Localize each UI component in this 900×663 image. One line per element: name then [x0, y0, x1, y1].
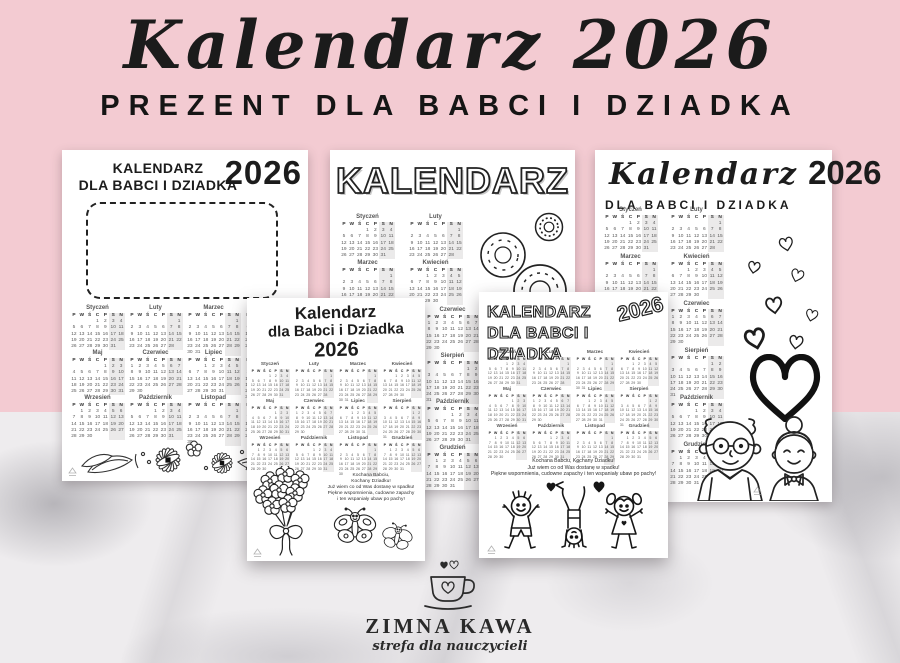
month-name-label: Styczeń	[340, 214, 395, 221]
page3-year: 2026	[247, 337, 426, 364]
mini-month-calendar-1: StyczeńPWŚCPSN12345678910111213141516171…	[340, 214, 395, 259]
mini-month-calendar-2: LutyPWŚCPSN12345678910111213141516171819…	[669, 207, 724, 252]
day-cell: 28	[70, 434, 78, 440]
month-days-grid: PWŚCPSN123456789101112131415161718192021…	[669, 262, 724, 299]
brand-footer: ZIMNA KAWA strefa dla nauczycieli	[350, 560, 550, 654]
month-name-label: Październik	[294, 436, 334, 442]
day-cell: 28	[356, 253, 364, 259]
coffee-cup-heart-logo-icon	[413, 560, 487, 612]
month-name-label: Luty	[294, 362, 334, 368]
mini-month-calendar-10: PaździernikPWŚCPSN1234567891011121314151…	[531, 424, 571, 460]
month-days-grid: PWŚCPSN123456789101112131415161718192021…	[382, 369, 422, 398]
mini-month-calendar-2: LutyPWŚCPSN12345678910111213141516171819…	[128, 305, 183, 350]
day-cell: 31	[642, 246, 650, 252]
mini-month-calendar-8: SierpieńPWŚCPSN1234567891011121314151617…	[669, 348, 724, 399]
mini-month-calendar-7: LipiecPWŚCPSN123456789101112131415161718…	[575, 387, 615, 423]
day-cell: 29	[449, 438, 457, 444]
day-cell	[708, 293, 716, 299]
day-cell	[455, 253, 463, 259]
month-days-grid: PWŚCPSN123456789101112131415161718192021…	[250, 406, 290, 435]
month-days-grid: PWŚCPSN123456789101112131415161718192021…	[531, 394, 571, 423]
month-name-label: Luty	[128, 305, 183, 312]
mini-month-calendar-10: PaździernikPWŚCPSN1234567891011121314151…	[128, 395, 183, 440]
mini-month-calendar-1: StyczeńPWŚCPSN12345678910111213141516171…	[487, 350, 527, 386]
mini-month-calendar-8: SierpieńPWŚCPSN1234567891011121314151617…	[425, 353, 480, 404]
mini-month-calendar-2: LutyPWŚCPSN12345678910111213141516171819…	[531, 350, 571, 386]
day-cell: 30	[634, 246, 642, 252]
main-title: Kalendarz 2026	[0, 6, 900, 84]
month-days-grid: PWŚCPSN123456789101112131415161718192021…	[250, 369, 290, 398]
day-cell	[449, 346, 457, 352]
month-name-label: Październik	[425, 399, 480, 406]
month-days-grid: PWŚCPSN123456789101112131415161718192021…	[340, 222, 395, 259]
month-name-label: Październik	[128, 395, 183, 402]
day-cell: 27	[700, 246, 708, 252]
month-name-label: Luty	[669, 207, 724, 214]
month-name-label: Lipiec	[338, 399, 378, 405]
day-cell: 28	[708, 246, 716, 252]
month-name-label: Styczeń	[487, 350, 527, 356]
page1-title-line2: DLA BABCI I DZIADKA	[74, 177, 242, 194]
day-cell: 28	[669, 481, 677, 487]
day-cell: 29	[433, 484, 441, 490]
month-name-label: Sierpień	[669, 348, 724, 355]
month-name-label: Marzec	[603, 254, 658, 261]
day-cell: 26	[340, 253, 348, 259]
month-name-label: Marzec	[340, 260, 395, 267]
day-cell	[565, 418, 571, 423]
day-cell	[685, 340, 693, 346]
month-name-label: Sierpień	[619, 387, 659, 393]
month-days-grid: PWŚCPSN123456789101112131415161718192021…	[619, 357, 659, 386]
day-cell: 27	[669, 293, 677, 299]
day-cell	[700, 293, 708, 299]
month-days-grid: PWŚCPSN123456789101112131415161718192021…	[531, 431, 571, 460]
day-cell: 28	[619, 246, 627, 252]
day-cell	[650, 246, 658, 252]
day-cell	[716, 293, 724, 299]
promo-graphic: Kalendarz 2026 PREZENT DLA BABCI I DZIAD…	[0, 0, 900, 663]
month-name-label: Czerwiec	[294, 399, 334, 405]
zimna-kawa-stamp-icon	[753, 486, 762, 496]
page4-poem: Kochana Babciu, Kochany Dziadku! Już wie…	[487, 458, 660, 478]
mini-month-calendar-6: CzerwiecPWŚCPSN1234567891011121314151617…	[425, 307, 480, 352]
day-cell: 30	[441, 484, 449, 490]
month-name-label: Wrzesień	[250, 436, 290, 442]
month-name-label: Marzec	[338, 362, 378, 368]
mini-month-calendar-4: KwiecieńPWŚCPSN1234567891011121314151617…	[382, 362, 422, 398]
day-cell	[447, 299, 455, 305]
month-days-grid: PWŚCPSN123456789101112131415161718192021…	[425, 453, 480, 490]
mini-month-calendar-2: LutyPWŚCPSN12345678910111213141516171819…	[294, 362, 334, 398]
page2-title: KALENDARZ	[330, 160, 575, 202]
day-cell: 28	[447, 253, 455, 259]
playing-kids-illustration	[499, 480, 649, 554]
mini-month-calendar-6: CzerwiecPWŚCPSN1234567891011121314151617…	[128, 350, 183, 395]
month-name-label: Kwiecień	[619, 350, 659, 356]
day-cell: 26	[693, 246, 701, 252]
day-cell: 26	[425, 438, 433, 444]
day-cell: 27	[611, 246, 619, 252]
month-name-label: Wrzesień	[487, 424, 527, 430]
mini-month-calendar-3: MarzecPWŚCPSN123456789101112131415161718…	[575, 350, 615, 391]
mini-month-calendar-3: MarzecPWŚCPSN123456789101112131415161718…	[186, 305, 241, 356]
month-name-label: Luty	[408, 214, 463, 221]
day-cell	[700, 340, 708, 346]
month-name-label: Lipiec	[186, 350, 241, 357]
day-cell: 25	[424, 253, 432, 259]
month-name-label: Maj	[487, 387, 527, 393]
page1-title-line1: KALENDARZ	[74, 160, 242, 177]
page1-title: KALENDARZ DLA BABCI I DZIADKA	[74, 160, 242, 194]
mini-month-calendar-7: LipiecPWŚCPSN123456789101112131415161718…	[186, 350, 241, 395]
mini-month-calendar-11: ListopadPWŚCPSN1234567891011121314151617…	[338, 436, 378, 477]
day-cell	[708, 340, 716, 346]
month-days-grid: PWŚCPSN123456789101112131415161718192021…	[669, 356, 724, 399]
day-cell	[653, 381, 659, 386]
month-days-grid: PWŚCPSN123456789101112131415161718192021…	[382, 443, 422, 472]
month-name-label: Marzec	[186, 305, 241, 312]
page5-title: Kalendarz 2026	[609, 154, 829, 192]
mini-month-calendar-9: WrzesieńPWŚCPSN1234567891011121314151617…	[70, 395, 125, 440]
month-name-label: Maj	[250, 399, 290, 405]
main-subtitle: PREZENT DLA BABCI I DZIADKA	[0, 90, 900, 123]
month-name-label: Październik	[669, 395, 724, 402]
day-cell	[284, 393, 290, 398]
day-cell	[439, 299, 447, 305]
day-cell: 27	[677, 434, 685, 440]
day-cell	[521, 381, 527, 386]
mini-month-calendar-6: CzerwiecPWŚCPSN1234567891011121314151617…	[294, 399, 334, 435]
mini-month-calendar-6: CzerwiecPWŚCPSN1234567891011121314151617…	[531, 387, 571, 423]
day-cell: 25	[685, 246, 693, 252]
day-cell: 30	[693, 293, 701, 299]
page5-year: 2026	[808, 154, 881, 192]
poem-line: Kochana Babciu, Kochany Dziadku!	[487, 458, 660, 465]
day-cell	[609, 418, 615, 423]
mini-month-calendar-2: LutyPWŚCPSN12345678910111213141516171819…	[408, 214, 463, 259]
day-cell: 27	[439, 253, 447, 259]
mini-month-calendar-12: GrudzieńPWŚCPSN1234567891011121314151617…	[619, 424, 659, 460]
month-name-label: Czerwiec	[669, 301, 724, 308]
day-cell	[456, 346, 464, 352]
day-cell: 26	[603, 246, 611, 252]
day-cell: 30	[456, 438, 464, 444]
month-days-grid: PWŚCPSN123456789101112131415161718192021…	[487, 431, 527, 460]
calendar-page-flowers-bouquet: Kalendarz dla Babci i Dziadka 2026 Stycz…	[247, 298, 425, 561]
day-cell: 26	[669, 434, 677, 440]
page1-year: 2026	[225, 154, 302, 192]
month-days-grid: PWŚCPSN123456789101112131415161718192021…	[531, 357, 571, 386]
day-cell: 28	[425, 484, 433, 490]
poem-line: Piękne wspomnienia, cudowne zapachy i te…	[487, 471, 660, 478]
day-cell: 30	[677, 340, 685, 346]
mini-month-calendar-1: StyczeńPWŚCPSN12345678910111213141516171…	[70, 305, 125, 350]
day-cell: 30	[371, 253, 379, 259]
day-cell: 31	[521, 418, 527, 423]
month-name-label: Czerwiec	[128, 350, 183, 357]
day-cell: 27	[433, 438, 441, 444]
month-days-grid: PWŚCPSN123456789101112131415161718192021…	[294, 369, 334, 398]
mini-month-calendar-5: MajPWŚCPSN123456789101112131415161718192…	[250, 399, 290, 435]
month-days-grid: PWŚCPSN123456789101112131415161718192021…	[70, 313, 125, 350]
day-cell	[565, 381, 571, 386]
month-days-grid: PWŚCPSN123456789101112131415161718192021…	[425, 361, 480, 404]
page3-poem: Kochana Babciu, Kochany Dziadku! Już wie…	[319, 473, 423, 503]
day-cell: 30	[433, 346, 441, 352]
month-days-grid: PWŚCPSN123456789101112131415161718192021…	[70, 403, 125, 440]
day-cell	[693, 340, 701, 346]
month-days-grid: PWŚCPSN123456789101112131415161718192021…	[128, 313, 183, 350]
month-name-label: Kwiecień	[382, 362, 422, 368]
month-name-label: Lipiec	[575, 387, 615, 393]
month-name-label: Sierpień	[425, 353, 480, 360]
day-cell: 24	[677, 246, 685, 252]
poem-line: Już wiem co od Was dostanę w spadku!	[487, 465, 660, 472]
mini-month-calendar-1: StyczeńPWŚCPSN12345678910111213141516171…	[603, 207, 658, 252]
day-cell: 29	[364, 253, 372, 259]
day-cell: 23	[408, 253, 416, 259]
mini-month-calendar-9: WrzesieńPWŚCPSN1234567891011121314151617…	[487, 424, 527, 460]
month-days-grid: PWŚCPSN123456789101112131415161718192021…	[338, 369, 378, 403]
day-cell	[387, 253, 395, 259]
hearts-illustration	[733, 232, 827, 354]
month-name-label: Maj	[70, 350, 125, 357]
day-cell	[372, 430, 378, 435]
day-cell: 29	[677, 481, 685, 487]
day-cell: 28	[677, 293, 685, 299]
month-name-label: Czerwiec	[531, 387, 571, 393]
day-cell: 31	[464, 438, 472, 444]
mini-month-calendar-1: StyczeńPWŚCPSN12345678910111213141516171…	[250, 362, 290, 398]
day-cell: 23	[669, 246, 677, 252]
day-cell	[716, 246, 724, 252]
month-name-label: Luty	[531, 350, 571, 356]
mini-month-calendar-5: MajPWŚCPSN123456789101112131415161718192…	[70, 350, 125, 395]
month-days-grid: PWŚCPSN123456789101112131415161718192021…	[128, 403, 183, 440]
month-name-label: Kwiecień	[669, 254, 724, 261]
month-days-grid: PWŚCPSN123456789101112131415161718192021…	[294, 406, 334, 435]
day-cell: 29	[669, 340, 677, 346]
month-days-grid: PWŚCPSN123456789101112131415161718192021…	[669, 309, 724, 346]
mini-month-calendar-3: MarzecPWŚCPSN123456789101112131415161718…	[338, 362, 378, 403]
month-name-label: Listopad	[575, 424, 615, 430]
day-cell	[456, 484, 464, 490]
mini-month-calendar-8: SierpieńPWŚCPSN1234567891011121314151617…	[382, 399, 422, 440]
mini-month-calendar-12: GrudzieńPWŚCPSN1234567891011121314151617…	[382, 436, 422, 472]
month-name-label: Listopad	[338, 436, 378, 442]
day-cell: 31	[284, 430, 290, 435]
zimna-kawa-stamp-icon	[487, 545, 496, 555]
month-name-label: Styczeń	[250, 362, 290, 368]
day-cell	[416, 393, 422, 398]
mini-month-calendar-8: SierpieńPWŚCPSN1234567891011121314151617…	[619, 387, 659, 428]
month-days-grid: PWŚCPSN123456789101112131415161718192021…	[382, 406, 422, 440]
month-name-label: Sierpień	[382, 399, 422, 405]
month-days-grid: PWŚCPSN123456789101112131415161718192021…	[575, 357, 615, 391]
month-name-label: Styczeń	[70, 305, 125, 312]
mini-month-calendar-5: MajPWŚCPSN123456789101112131415161718192…	[487, 387, 527, 423]
mini-month-calendar-10: PaździernikPWŚCPSN1234567891011121314151…	[425, 399, 480, 444]
month-days-grid: PWŚCPSN123456789101112131415161718192021…	[425, 315, 480, 352]
day-cell: 28	[441, 438, 449, 444]
day-cell	[441, 346, 449, 352]
day-cell: 29	[685, 293, 693, 299]
day-cell: 31	[379, 253, 387, 259]
mini-month-calendar-4: KwiecieńPWŚCPSN1234567891011121314151617…	[619, 350, 659, 386]
day-cell: 29	[627, 246, 635, 252]
month-days-grid: PWŚCPSN123456789101112131415161718192021…	[408, 222, 463, 259]
month-days-grid: PWŚCPSN123456789101112131415161718192021…	[128, 358, 183, 395]
butterflies-illustration	[327, 500, 419, 556]
day-cell	[416, 467, 422, 472]
month-days-grid: PWŚCPSN123456789101112131415161718192021…	[575, 394, 615, 423]
page5-title-script: Kalendarz	[609, 157, 798, 192]
month-name-label: Kwiecień	[408, 260, 463, 267]
month-days-grid: PWŚCPSN123456789101112131415161718192021…	[70, 358, 125, 395]
month-days-grid: PWŚCPSN123456789101112131415161718192021…	[425, 407, 480, 444]
day-cell	[464, 346, 472, 352]
zimna-kawa-stamp-icon	[253, 548, 262, 558]
month-name-label: Grudzień	[619, 424, 659, 430]
month-days-grid: PWŚCPSN123456789101112131415161718192021…	[669, 215, 724, 252]
month-name-label: Styczeń	[603, 207, 658, 214]
month-days-grid: PWŚCPSN123456789101112131415161718192021…	[487, 357, 527, 386]
month-days-grid: PWŚCPSN123456789101112131415161718192021…	[619, 394, 659, 428]
month-name-label: Wrzesień	[70, 395, 125, 402]
day-cell	[455, 299, 463, 305]
day-cell	[328, 430, 334, 435]
day-cell: 31	[449, 484, 457, 490]
month-name-label: Czerwiec	[425, 307, 480, 314]
day-cell	[328, 467, 334, 472]
month-days-grid: PWŚCPSN123456789101112131415161718192021…	[487, 394, 527, 423]
brand-name: ZIMNA KAWA	[350, 614, 550, 639]
month-days-grid: PWŚCPSN123456789101112131415161718192021…	[603, 215, 658, 252]
month-name-label: Marzec	[575, 350, 615, 356]
day-cell	[464, 484, 472, 490]
day-cell: 24	[416, 253, 424, 259]
month-days-grid: PWŚCPSN123456789101112131415161718192021…	[338, 406, 378, 435]
mini-month-calendar-6: CzerwiecPWŚCPSN1234567891011121314151617…	[669, 301, 724, 346]
month-name-label: Listopad	[186, 395, 241, 402]
mini-month-calendar-7: LipiecPWŚCPSN123456789101112131415161718…	[338, 399, 378, 435]
mini-month-calendar-4: KwiecieńPWŚCPSN1234567891011121314151617…	[669, 254, 724, 299]
zimna-kawa-stamp-icon	[68, 467, 77, 477]
month-days-grid: PWŚCPSN123456789101112131415161718192021…	[186, 358, 241, 395]
day-cell: 27	[348, 253, 356, 259]
month-days-grid: PWŚCPSN123456789101112131415161718192021…	[338, 443, 378, 477]
month-name-label: Październik	[531, 424, 571, 430]
month-name-label: Grudzień	[425, 445, 480, 452]
calendar-page-kids: KALENDARZ DLA BABCI I DZIADKA 2026 Stycz…	[479, 292, 668, 558]
flower-bouquet-illustration	[251, 466, 323, 558]
day-cell: 29	[425, 346, 433, 352]
brand-tagline: strefa dla nauczycieli	[350, 639, 550, 654]
page3-title: Kalendarz dla Babci i Dziadka 2026	[246, 302, 425, 364]
mini-month-calendar-12: GrudzieńPWŚCPSN1234567891011121314151617…	[425, 445, 480, 490]
day-cell	[328, 393, 334, 398]
day-cell	[716, 340, 724, 346]
month-name-label: Grudzień	[382, 436, 422, 442]
day-cell: 26	[432, 253, 440, 259]
month-days-grid: PWŚCPSN123456789101112131415161718192021…	[619, 431, 659, 460]
day-cell: 30	[432, 299, 440, 305]
photo-frame	[86, 202, 278, 299]
